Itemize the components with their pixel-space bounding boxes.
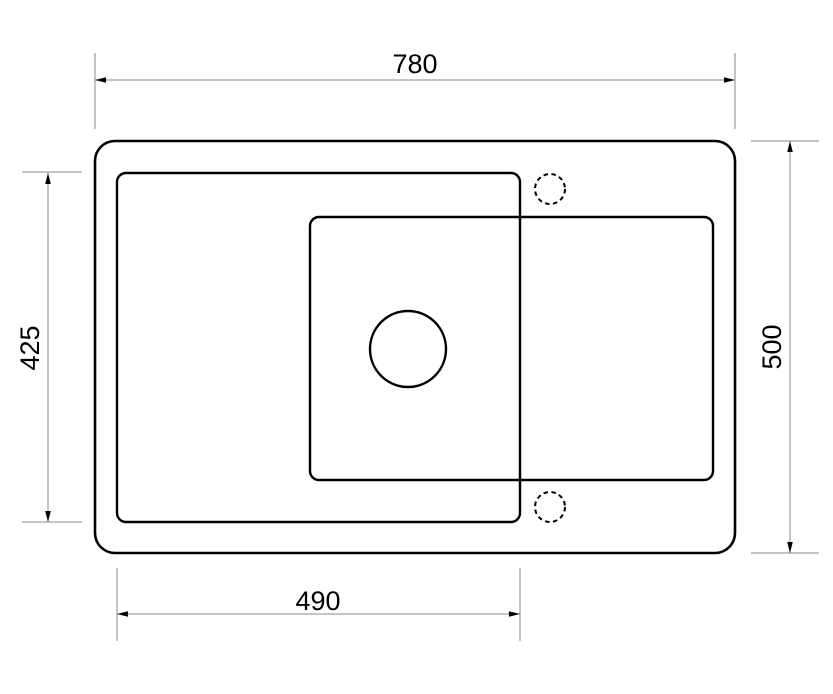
dimension-drainer-width: 490: [117, 568, 520, 641]
sink-technical-drawing: 780500425490: [0, 0, 833, 694]
dimension-drainer-depth: 425: [15, 172, 82, 522]
dimension-arrow: [45, 173, 51, 184]
dimension-label-drainer-depth: 425: [15, 325, 45, 370]
sink-outer-rim: [95, 141, 735, 553]
dimension-arrow: [724, 77, 735, 83]
sink-shapes-group: [95, 141, 735, 553]
dimension-label-drainer-width: 490: [295, 586, 340, 616]
tap-hole-top: [535, 174, 565, 204]
dimension-label-overall-depth: 500: [757, 324, 787, 369]
dimension-arrow: [117, 611, 128, 617]
drain-hole: [370, 311, 446, 387]
tap-hole-bottom: [535, 492, 565, 522]
dimension-arrow: [95, 77, 106, 83]
drawing-canvas: 780500425490: [0, 0, 833, 694]
dimension-overall-width: 780: [95, 49, 735, 129]
dimension-overall-depth: 500: [751, 141, 819, 553]
dimension-arrow: [787, 141, 793, 152]
dimension-arrow: [787, 542, 793, 553]
dimension-label-overall-width: 780: [392, 49, 437, 79]
dimension-arrow: [509, 611, 520, 617]
dimension-arrow: [45, 511, 51, 522]
drainer-board-outline: [117, 173, 520, 522]
